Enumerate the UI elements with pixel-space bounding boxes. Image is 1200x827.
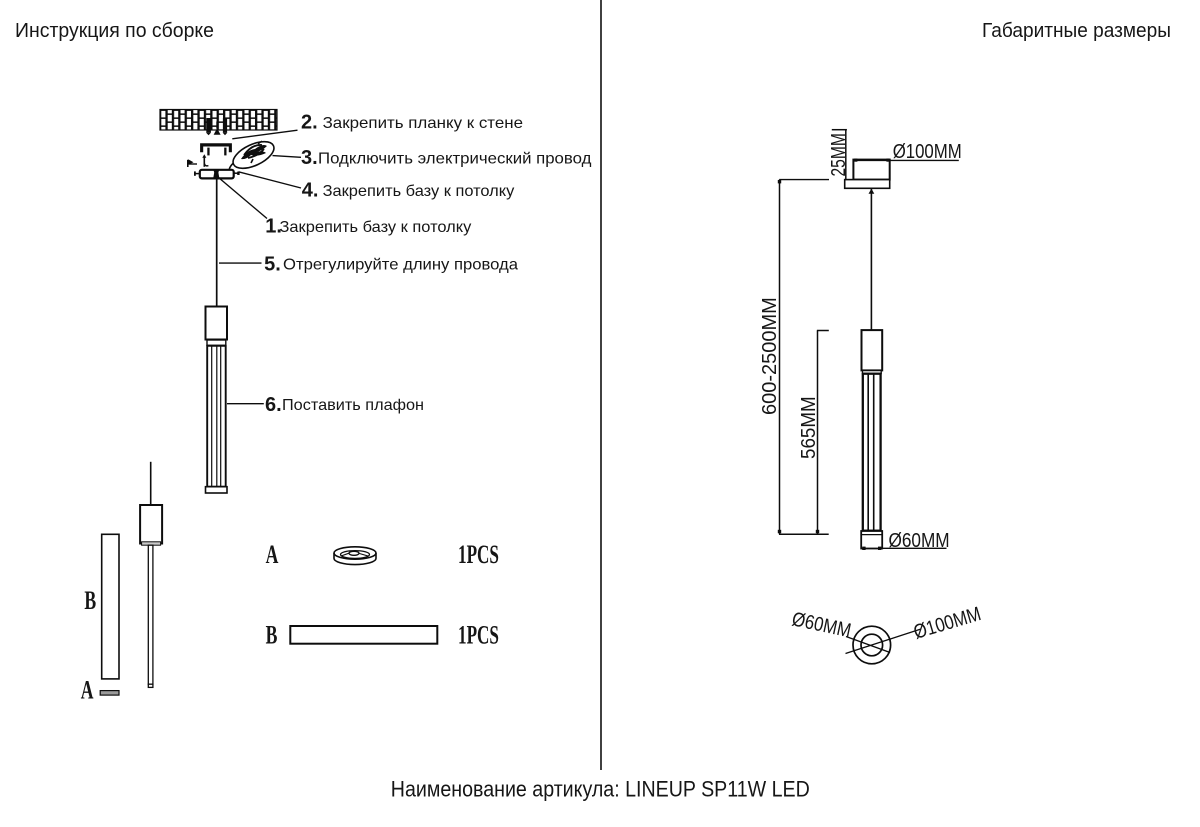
svg-text:A: A: [81, 675, 94, 704]
svg-text:Поставить плафон: Поставить плафон: [282, 397, 424, 414]
svg-text:Инструкция по сборке: Инструкция по сборке: [15, 20, 214, 42]
svg-text:Закрепить базу к потолку: Закрепить базу к потолку: [280, 219, 472, 236]
svg-text:1PCS: 1PCS: [458, 620, 499, 650]
svg-text:4.: 4.: [302, 180, 319, 202]
svg-text:600-2500MM: 600-2500MM: [759, 297, 781, 415]
svg-text:B: B: [84, 585, 96, 614]
svg-text:565MM: 565MM: [797, 396, 820, 459]
svg-text:Закрепить базу к потолку: Закрепить базу к потолку: [323, 183, 515, 200]
svg-text:3.: 3.: [301, 147, 318, 169]
svg-text:Габаритные размеры: Габаритные размеры: [982, 20, 1171, 42]
svg-text:B: B: [266, 620, 278, 649]
svg-text:Отрегулируйте длину провода: Отрегулируйте длину провода: [283, 257, 518, 274]
svg-text:1PCS: 1PCS: [458, 539, 499, 569]
svg-text:Наименование артикула: LINEUP: Наименование артикула: LINEUP SP11W LED: [391, 777, 810, 802]
svg-text:2.: 2.: [301, 112, 318, 134]
svg-text:6.: 6.: [265, 394, 282, 416]
svg-text:5.: 5.: [264, 253, 281, 275]
svg-text:Ø60MM: Ø60MM: [889, 529, 950, 552]
svg-text:Подключить электрический прово: Подключить электрический провод: [318, 151, 592, 168]
svg-text:A: A: [266, 540, 279, 569]
svg-text:Закрепить планку к стене: Закрепить планку к стене: [323, 115, 524, 132]
svg-text:Ø100MM: Ø100MM: [893, 140, 962, 163]
